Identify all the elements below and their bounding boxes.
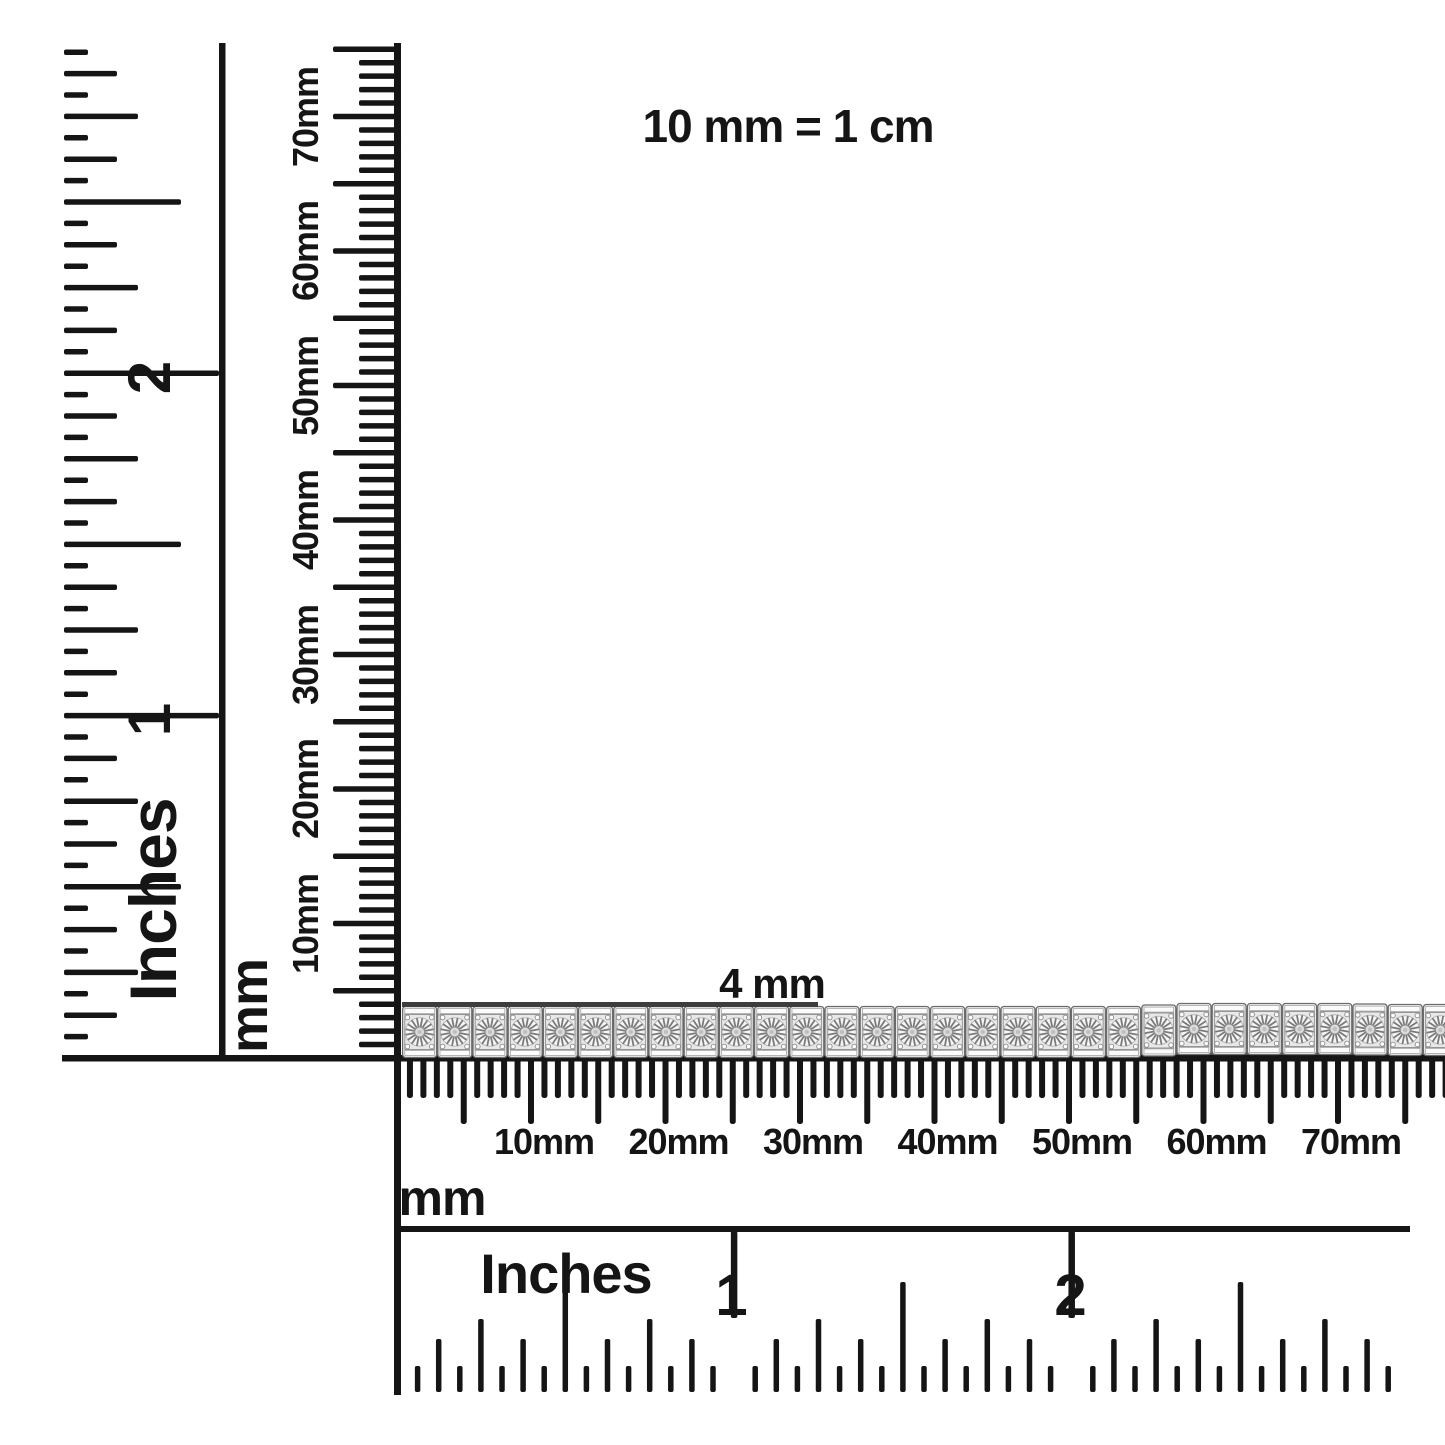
bottom-inch-tick (1090, 1366, 1096, 1392)
bottom-inch-tick (1322, 1319, 1328, 1392)
left-inch-tick (64, 927, 117, 933)
link-bottom-rail (1426, 1048, 1445, 1053)
left-inch-tick (64, 285, 138, 291)
corner-bead (606, 1044, 611, 1049)
diamond-sparkle (981, 1030, 985, 1034)
bottom-mm-ruler-title: mm (399, 1173, 486, 1223)
corner-bead (1250, 1012, 1255, 1017)
bottom-mm-tick (555, 1058, 561, 1098)
bottom-inch-tick (520, 1339, 526, 1392)
diamond-sparkle (1262, 1027, 1266, 1031)
left-inch-number-2: 2 (120, 362, 180, 394)
diamond-sparkle (593, 1030, 597, 1034)
corner-bead (792, 1044, 797, 1049)
corner-bead (430, 1015, 435, 1020)
bottom-inch-tick (921, 1366, 927, 1392)
bottom-mm-tick (1201, 1058, 1207, 1124)
corner-bead (1098, 1044, 1103, 1049)
bottom-mm-tick (932, 1058, 938, 1124)
link-bottom-rail (686, 1050, 716, 1055)
left-mm-tick (359, 746, 401, 752)
corner-bead (641, 1044, 646, 1049)
left-mm-tick (359, 867, 401, 873)
bottom-inch-tick (626, 1366, 632, 1392)
bracelet-link (508, 1007, 542, 1058)
bottom-inch-tick (605, 1339, 611, 1392)
corner-bead (863, 1044, 868, 1049)
corner-bead (1039, 1015, 1044, 1020)
corner-bead (1109, 1044, 1114, 1049)
left-mm-ruler-title: mm (222, 959, 276, 1053)
corner-bead (1074, 1015, 1079, 1020)
corner-bead (1415, 1013, 1420, 1018)
bottom-mm-tick (595, 1058, 601, 1124)
corner-bead (1274, 1041, 1279, 1046)
left-mm-tick (359, 571, 401, 577)
diamond-sparkle (875, 1030, 879, 1034)
bracelet-link (579, 1007, 613, 1058)
corner-bead (440, 1015, 445, 1020)
left-mm-tick (359, 679, 401, 685)
corner-bead (1180, 1012, 1185, 1017)
bracelet-link (438, 1007, 472, 1058)
diamond-sparkle (417, 1030, 421, 1034)
bottom-mm-tick (958, 1058, 964, 1098)
link-bottom-rail (1003, 1050, 1033, 1055)
corner-bead (1215, 1012, 1220, 1017)
bottom-mm-tick (1093, 1058, 1099, 1098)
bottom-mm-tick (851, 1058, 857, 1098)
left-inch-ruler-line (219, 43, 226, 1058)
link-bottom-rail (792, 1050, 822, 1055)
left-mm-tick (359, 706, 401, 712)
left-mm-tick (359, 356, 401, 362)
link-bottom-rail (1355, 1048, 1385, 1053)
left-mm-tick (359, 813, 401, 819)
bottom-inch-tick (1027, 1339, 1033, 1392)
bottom-mm-tick-label: 20mm (628, 1124, 728, 1160)
left-inch-tick (64, 542, 181, 548)
bottom-mm-tick (770, 1058, 776, 1098)
corner-bead (1098, 1015, 1103, 1020)
bottom-inch-tick (1280, 1339, 1286, 1392)
corner-bead (757, 1044, 762, 1049)
diamond-sparkle (734, 1030, 738, 1034)
link-bottom-rail (1250, 1047, 1280, 1052)
bottom-mm-tick (703, 1058, 709, 1098)
bottom-inch-tick (457, 1366, 463, 1392)
diamond-sparkle (1086, 1030, 1090, 1034)
bottom-mm-tick (1147, 1058, 1153, 1098)
corner-bead (1204, 1012, 1209, 1017)
diamond-sparkle (488, 1030, 492, 1034)
corner-bead (687, 1015, 692, 1020)
corner-bead (1239, 1041, 1244, 1046)
bottom-mm-tick (649, 1058, 655, 1098)
corner-bead (863, 1015, 868, 1020)
left-mm-tick (359, 880, 401, 886)
bottom-mm-tick (985, 1058, 991, 1098)
corner-bead (757, 1015, 762, 1020)
link-top-rail (1320, 1006, 1350, 1011)
bottom-mm-tick-label: 70mm (1301, 1124, 1401, 1160)
bottom-mm-tick (676, 1058, 682, 1098)
link-bottom-rail (722, 1050, 752, 1055)
bracelet-link (614, 1007, 648, 1058)
left-mm-tick (359, 194, 401, 200)
corner-bead (933, 1044, 938, 1049)
bottom-mm-tick (528, 1058, 534, 1124)
corner-bead (652, 1044, 657, 1049)
bracelet-link (1353, 1004, 1387, 1055)
bracelet-link (1212, 1004, 1246, 1055)
link-top-rail (1144, 1007, 1174, 1012)
bottom-mm-tick (582, 1058, 588, 1098)
link-bottom-rail (1390, 1048, 1420, 1053)
left-mm-tick-label: 50mm (288, 335, 324, 435)
left-inch-tick (64, 991, 88, 997)
bottom-inch-tick (985, 1319, 991, 1392)
left-inch-tick (64, 606, 88, 612)
bottom-inch-tick (584, 1366, 590, 1392)
bottom-mm-tick (1322, 1058, 1328, 1098)
link-top-rail (651, 1009, 681, 1014)
bracelet-link (649, 1007, 683, 1058)
bracelet-link (1071, 1007, 1105, 1058)
bottom-mm-tick (918, 1058, 924, 1098)
bottom-mm-tick (1348, 1058, 1354, 1098)
corner-bead (1320, 1012, 1325, 1017)
link-bottom-rail (1074, 1050, 1104, 1055)
bottom-inch-tick (415, 1366, 421, 1392)
bottom-inch-tick (1132, 1366, 1138, 1392)
bottom-mm-tick (568, 1058, 574, 1098)
diamond-sparkle (1016, 1030, 1020, 1034)
corner-bead (828, 1015, 833, 1020)
bottom-mm-tick (1241, 1058, 1247, 1098)
left-inch-tick (64, 841, 117, 847)
bottom-inch-tick (1238, 1282, 1244, 1392)
link-bottom-rail (405, 1050, 435, 1055)
bottom-mm-tick (1039, 1058, 1045, 1098)
link-bottom-rail (898, 1050, 928, 1055)
corner-bead (652, 1015, 657, 1020)
left-mm-tick (359, 665, 401, 671)
left-mm-tick (359, 154, 401, 160)
link-bottom-rail (1179, 1047, 1209, 1052)
product-measurement-image: 10 mm = 1 cm 4 mm Inches 1 2 mm mm Inche… (0, 0, 1445, 1445)
left-mm-tick (359, 611, 401, 617)
bottom-mm-tick (636, 1058, 642, 1098)
bottom-mm-tick (824, 1058, 830, 1098)
left-mm-tick (359, 168, 401, 174)
bracelet-link (403, 1007, 437, 1058)
link-bottom-rail (510, 1050, 540, 1055)
bottom-inch-tick (1217, 1366, 1223, 1392)
bottom-inch-tick (1174, 1366, 1180, 1392)
corner-bead (711, 1015, 716, 1020)
left-mm-tick (359, 127, 401, 133)
corner-bead (570, 1044, 575, 1049)
bottom-inch-tick (942, 1339, 948, 1392)
bottom-mm-tick (1133, 1058, 1139, 1124)
left-mm-tick (333, 47, 401, 53)
left-mm-tick (333, 652, 401, 658)
left-mm-tick (359, 423, 401, 429)
corner-bead (993, 1015, 998, 1020)
bottom-mm-tick (864, 1058, 870, 1124)
diamond-sparkle (805, 1030, 809, 1034)
left-mm-tick (359, 463, 401, 469)
left-mm-tick (333, 517, 401, 523)
bottom-inch-ruler-title: Inches (480, 1246, 651, 1302)
left-mm-tick (333, 114, 401, 120)
link-bottom-rail (1320, 1047, 1350, 1052)
left-mm-tick (359, 87, 401, 93)
bottom-mm-tick (609, 1058, 615, 1098)
left-mm-tick (359, 638, 401, 644)
bottom-mm-tick (716, 1058, 722, 1098)
corner-bead (1345, 1012, 1350, 1017)
bottom-mm-tick (1120, 1058, 1126, 1098)
diamond-sparkle (1368, 1027, 1372, 1031)
link-top-rail (722, 1009, 752, 1014)
bottom-inch-tick (499, 1366, 505, 1392)
link-top-rail (686, 1009, 716, 1014)
corner-bead (500, 1015, 505, 1020)
bottom-mm-tick (757, 1058, 763, 1098)
corner-bead (722, 1044, 727, 1049)
corner-bead (476, 1044, 481, 1049)
left-mm-tick (359, 437, 401, 443)
corner-bead (511, 1044, 516, 1049)
corner-bead (1356, 1042, 1361, 1047)
left-inch-tick (64, 649, 88, 655)
link-top-rail (968, 1009, 998, 1014)
bottom-mm-tick (434, 1058, 440, 1098)
corner-bead (817, 1015, 822, 1020)
corner-bead (828, 1044, 833, 1049)
corner-bead (1134, 1044, 1139, 1049)
corner-bead (1074, 1044, 1079, 1049)
link-bottom-rail (757, 1050, 787, 1055)
bottom-mm-tick (1187, 1058, 1193, 1098)
link-top-rail (616, 1009, 646, 1014)
link-top-rail (405, 1009, 435, 1014)
left-inch-tick (64, 178, 88, 184)
left-inch-tick (64, 499, 117, 505)
left-mm-tick (359, 625, 401, 631)
link-bottom-rail (1214, 1047, 1244, 1052)
corner-bead (546, 1044, 551, 1049)
left-mm-tick (359, 840, 401, 846)
left-inch-tick (64, 1034, 88, 1040)
left-mm-tick (333, 383, 401, 389)
link-top-rail (1038, 1009, 1068, 1014)
corner-bead (1004, 1044, 1009, 1049)
corner-bead (887, 1044, 892, 1049)
diamond-sparkle (1121, 1030, 1125, 1034)
left-mm-tick-label: 60mm (288, 201, 324, 301)
bottom-mm-tick (1308, 1058, 1314, 1098)
left-inch-number-1: 1 (120, 704, 180, 736)
link-bottom-rail (475, 1050, 505, 1055)
bracelet-link (895, 1007, 929, 1058)
corner-bead (465, 1044, 470, 1049)
corner-bead (1109, 1015, 1114, 1020)
left-inch-tick (64, 734, 88, 740)
left-mm-tick (359, 235, 401, 241)
bottom-mm-tick (1268, 1058, 1274, 1124)
bottom-mm-tick-label: 10mm (494, 1124, 594, 1160)
bracelet-link (1283, 1004, 1317, 1055)
bottom-mm-tick (784, 1058, 790, 1098)
bottom-mm-tick (1066, 1058, 1072, 1124)
left-inch-tick (64, 905, 88, 911)
corner-bead (1239, 1012, 1244, 1017)
bottom-inch-tick (1048, 1366, 1054, 1392)
diamond-sparkle (1051, 1030, 1055, 1034)
measurement-graphic (0, 0, 1445, 1445)
left-mm-tick (333, 854, 401, 860)
left-inch-tick (64, 306, 88, 312)
corner-bead (1250, 1041, 1255, 1046)
corner-bead (852, 1044, 857, 1049)
corner-bead (1380, 1013, 1385, 1018)
bottom-inch-number-1: 1 (715, 1267, 746, 1325)
left-inch-tick (64, 221, 88, 227)
left-mm-tick (359, 975, 401, 981)
bottom-mm-tick-label: 40mm (897, 1124, 997, 1160)
bottom-inch-tick (858, 1339, 864, 1392)
corner-bead (465, 1015, 470, 1020)
bracelet-link (1107, 1007, 1141, 1058)
corner-bead (581, 1015, 586, 1020)
link-top-rail (1003, 1009, 1033, 1014)
mm-inch-separator-line (394, 1226, 1410, 1232)
corner-bead (958, 1015, 963, 1020)
left-mm-tick (359, 342, 401, 348)
left-mm-tick (359, 934, 401, 940)
link-top-rail (1250, 1006, 1280, 1011)
left-mm-tick (359, 329, 401, 335)
corner-bead (1285, 1041, 1290, 1046)
left-mm-tick (359, 907, 401, 913)
bracelet-link (825, 1007, 859, 1058)
link-top-rail (1426, 1007, 1445, 1012)
bottom-inch-tick (879, 1366, 885, 1392)
corner-bead (535, 1044, 540, 1049)
bottom-inch-number-2: 2 (1054, 1267, 1085, 1325)
left-inch-tick (64, 777, 88, 783)
link-top-rail (757, 1009, 787, 1014)
corner-bead (1028, 1044, 1033, 1049)
bottom-mm-tick (1335, 1058, 1341, 1124)
bracelet-link (1388, 1005, 1422, 1056)
left-inch-tick (64, 563, 88, 569)
bottom-mm-tick (689, 1058, 695, 1098)
bottom-inch-tick (1364, 1339, 1370, 1392)
left-mm-tick-label: 30mm (288, 604, 324, 704)
corner-bead (1169, 1043, 1174, 1048)
corner-bead (1039, 1044, 1044, 1049)
bracelet-link (1001, 1007, 1035, 1058)
bottom-mm-tick (810, 1058, 816, 1098)
link-top-rail (1179, 1006, 1209, 1011)
corner-bead (782, 1015, 787, 1020)
left-inch-tick (64, 691, 88, 697)
left-mm-tick (359, 948, 401, 954)
bottom-inch-tick (963, 1366, 969, 1392)
corner-bead (676, 1044, 681, 1049)
bottom-mm-tick (743, 1058, 749, 1098)
link-top-rail (1074, 1009, 1104, 1014)
left-inch-tick (64, 263, 88, 269)
link-top-rail (581, 1009, 611, 1014)
left-mm-tick (359, 1042, 401, 1048)
left-inch-tick (64, 863, 88, 869)
left-inch-tick (64, 520, 88, 526)
bottom-inch-tick (541, 1366, 547, 1392)
link-bottom-rail (862, 1050, 892, 1055)
left-inch-tick (64, 392, 88, 398)
link-bottom-rail (1038, 1050, 1068, 1055)
left-inch-tick (64, 71, 117, 77)
corner-bead (616, 1044, 621, 1049)
left-mm-tick (359, 275, 401, 281)
left-mm-tick (359, 732, 401, 738)
bottom-inch-tick (436, 1339, 442, 1392)
bottom-inch-tick (710, 1366, 716, 1392)
left-mm-tick (359, 477, 401, 483)
corner-bead (1063, 1015, 1068, 1020)
corner-bead (1415, 1042, 1420, 1047)
corner-bead (676, 1015, 681, 1020)
corner-bead (1391, 1013, 1396, 1018)
left-mm-tick (359, 773, 401, 779)
link-bottom-rail (1144, 1049, 1174, 1054)
bracelet-link (1177, 1004, 1211, 1055)
bottom-mm-tick-label: 50mm (1032, 1124, 1132, 1160)
bracelet-link (790, 1007, 824, 1058)
left-mm-tick (359, 692, 401, 698)
corner-bead (722, 1015, 727, 1020)
left-mm-tick (333, 450, 401, 456)
bottom-mm-tick (1026, 1058, 1032, 1098)
left-mm-tick (359, 100, 401, 106)
bottom-mm-tick (461, 1058, 467, 1124)
left-inch-tick (64, 413, 117, 419)
corner-bead (1310, 1012, 1315, 1017)
diamond-sparkle (664, 1030, 668, 1034)
tennis-bracelet (402, 1004, 1445, 1058)
corner-bead (641, 1015, 646, 1020)
diamond-sparkle (1333, 1027, 1337, 1031)
link-bottom-rail (1109, 1050, 1139, 1055)
scale-note: 10 mm = 1 cm (642, 103, 933, 149)
bracelet-link (966, 1007, 1000, 1058)
link-top-rail (1390, 1007, 1420, 1012)
bottom-inch-tick (1196, 1339, 1202, 1392)
bottom-inch-tick (900, 1282, 906, 1392)
left-inch-tick (64, 456, 138, 462)
bottom-mm-tick (1012, 1058, 1018, 1098)
bracelet-link (931, 1007, 965, 1058)
left-mm-tick (359, 369, 401, 375)
link-bottom-rail (546, 1050, 576, 1055)
corner-bead (968, 1015, 973, 1020)
left-inch-ruler-title: Inches (120, 798, 186, 1001)
